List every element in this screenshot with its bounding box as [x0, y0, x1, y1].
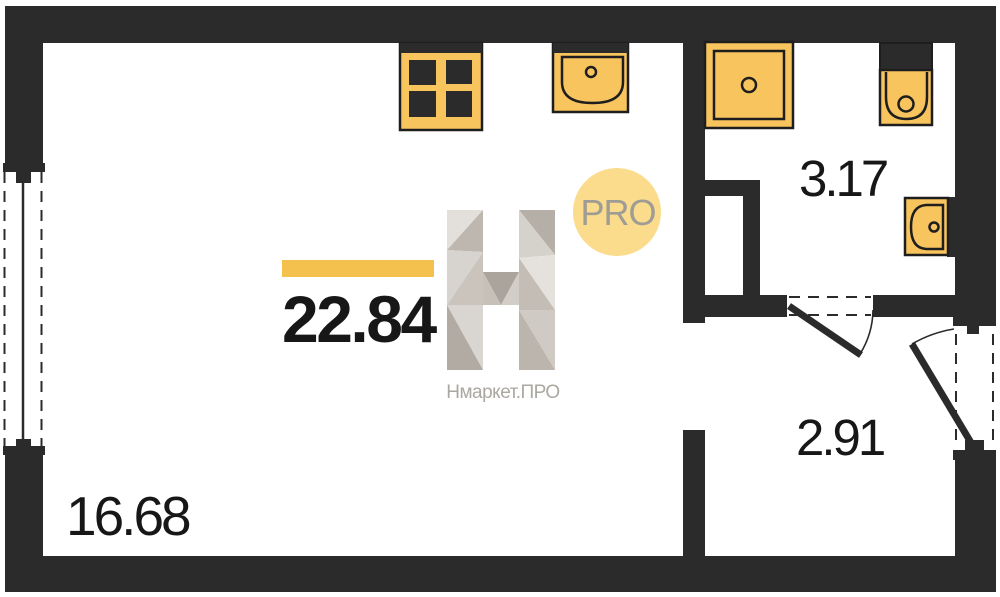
brand-name-label: Нмаркет.ПРО — [446, 382, 559, 403]
entrance-door-leaf — [912, 344, 973, 446]
floor-plan: PRO Нмаркет.ПРО 22.84 16.68 3.17 2.91 — [0, 0, 1000, 597]
pro-badge-label: PRO — [580, 192, 655, 233]
toilet-tank — [880, 43, 932, 70]
window-sill-top — [3, 163, 45, 172]
kitchen-sink-back-strip — [553, 43, 628, 53]
bathroom-door-latch-block — [873, 300, 885, 313]
bathroom-door — [789, 297, 885, 355]
shower-tray — [705, 42, 793, 128]
bathroom-door-swing-arc — [860, 310, 873, 354]
window — [3, 163, 45, 455]
entrance-door — [912, 317, 996, 460]
window-frame-bottom — [16, 439, 31, 451]
wall-bathroom-bottom-right — [873, 295, 955, 317]
wall-bathroom-bottom-left — [683, 295, 787, 317]
wall-bottom — [5, 556, 996, 592]
stove-burner-tr — [446, 60, 472, 84]
toilet-icon — [880, 43, 932, 125]
shower-icon — [705, 42, 793, 128]
entrance-door-sill-top — [953, 317, 996, 326]
wall-right-lower — [955, 460, 996, 592]
entrance-door-swing-arc — [912, 329, 954, 344]
stove-burner-bl — [409, 91, 436, 117]
wall-top — [5, 6, 996, 43]
stove-burner-tl — [409, 60, 436, 85]
stove-icon — [400, 43, 482, 130]
kitchen-sink-icon — [553, 43, 628, 112]
floor-plan-svg: PRO Нмаркет.ПРО 22.84 16.68 3.17 2.91 — [0, 0, 1000, 597]
hallway-area-label: 2.91 — [796, 409, 884, 466]
wall-left-upper — [5, 43, 43, 163]
brand-logo-icon — [447, 210, 555, 370]
entrance-door-latch-block — [967, 326, 979, 334]
living-room-area-label: 16.68 — [66, 485, 190, 547]
wall-divider-lower — [683, 430, 705, 556]
washbasin-icon — [905, 197, 956, 257]
duct-shaft-top — [705, 180, 760, 196]
duct-shaft-right — [743, 196, 760, 297]
wall-divider-upper — [683, 43, 705, 323]
stove-burner-br — [446, 91, 472, 117]
stove-back-strip — [400, 43, 482, 53]
bathroom-area-label: 3.17 — [799, 150, 887, 207]
window-frame-top — [16, 171, 31, 183]
total-area-label: 22.84 — [282, 282, 437, 356]
bathroom-door-leaf — [789, 306, 861, 355]
accent-bar — [282, 260, 434, 277]
wall-right-upper — [955, 43, 996, 317]
